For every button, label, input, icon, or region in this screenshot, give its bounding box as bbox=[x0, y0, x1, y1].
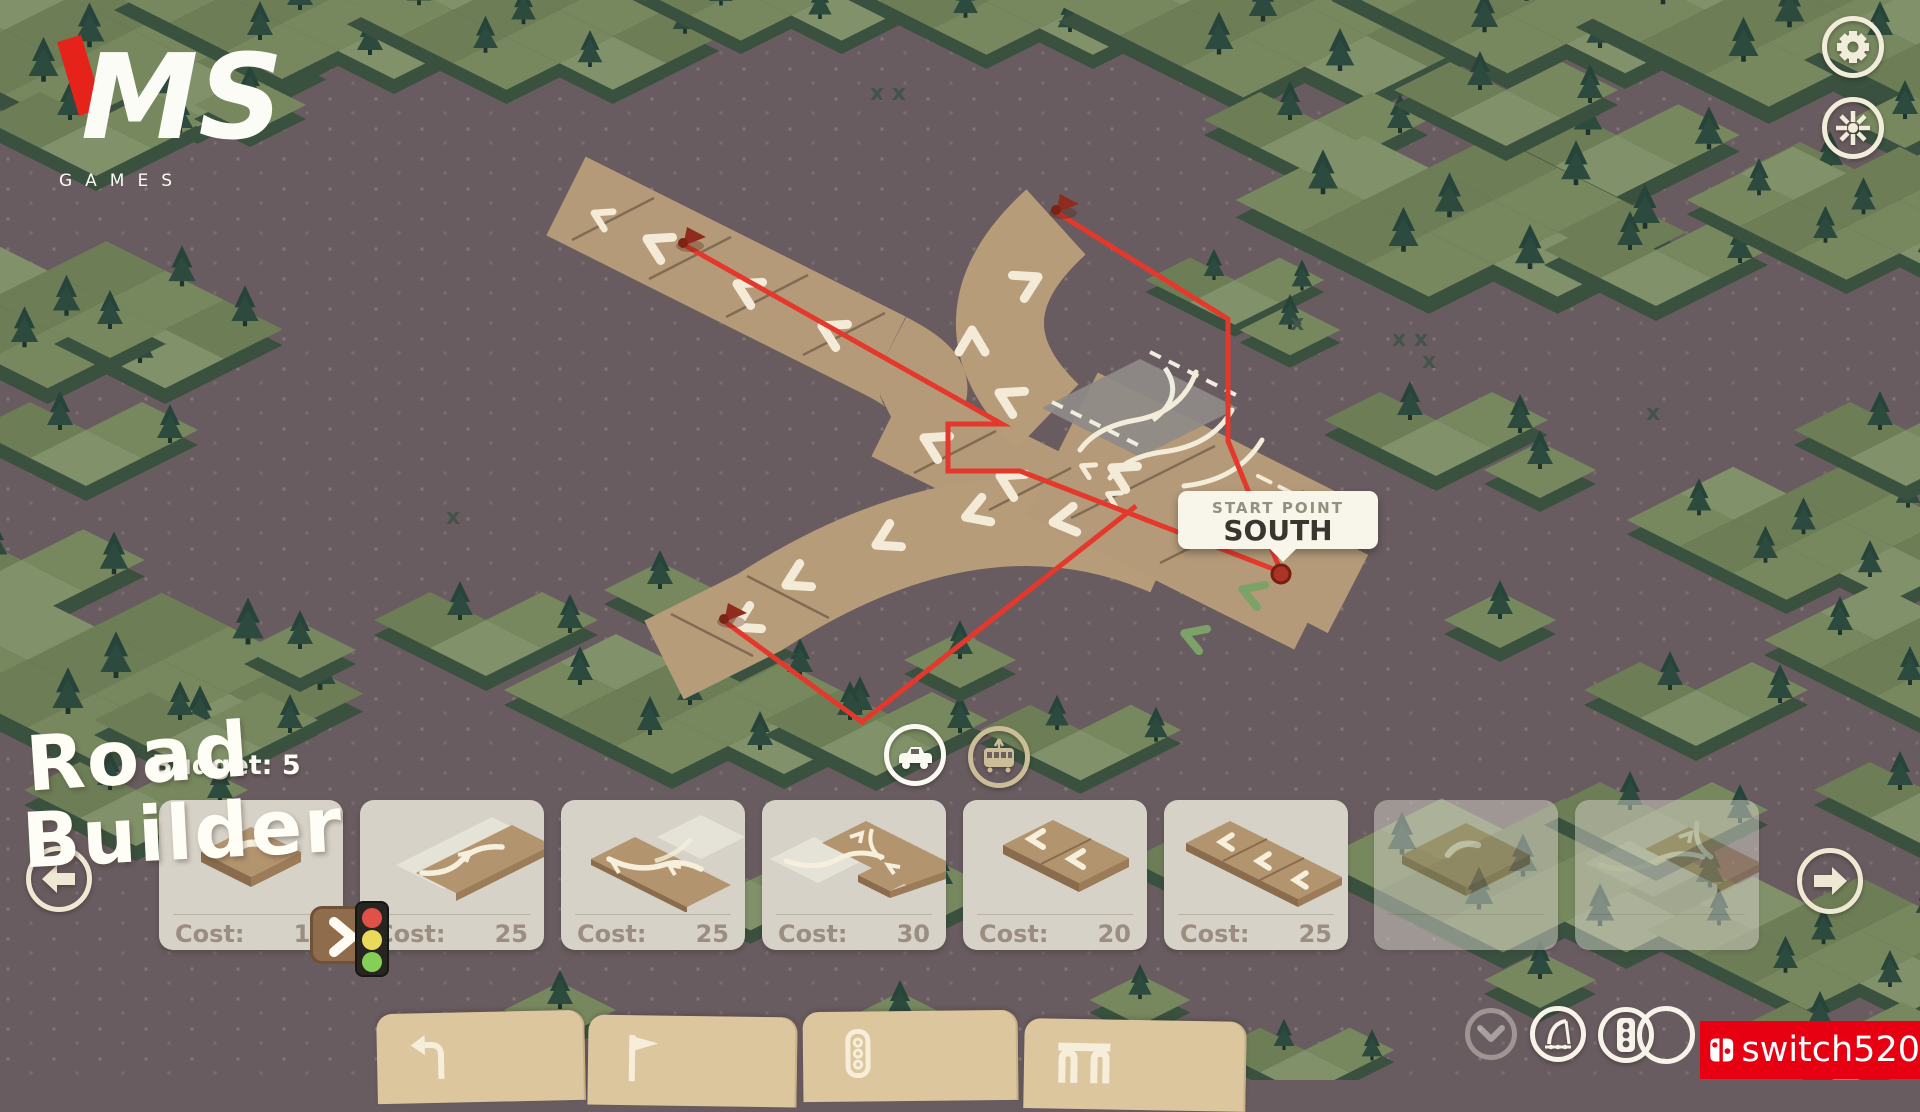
cost-label: Cost: bbox=[175, 920, 244, 948]
road-card-exit-ramp[interactable]: Cost:25 bbox=[561, 800, 745, 950]
collapse-toolbar-button[interactable] bbox=[1465, 1008, 1517, 1060]
logo-subtitle-glyph: GAMES bbox=[59, 171, 185, 191]
sun-icon bbox=[1833, 108, 1873, 148]
cost-label: Cost: bbox=[979, 920, 1048, 948]
tram-icon bbox=[978, 736, 1020, 778]
tile-wide-turn-icon bbox=[1374, 802, 1558, 912]
cost-label: Cost: bbox=[1180, 920, 1249, 948]
arrow-right-icon bbox=[1812, 866, 1848, 896]
svg-text:x x: x x bbox=[870, 81, 906, 106]
cost-value: 25 bbox=[495, 920, 528, 948]
start-point-tooltip: START POINT SOUTH bbox=[1178, 491, 1378, 549]
svg-text:x: x bbox=[1422, 349, 1436, 374]
flag-icon bbox=[618, 1031, 669, 1084]
drawbridge-button[interactable] bbox=[1530, 1006, 1586, 1062]
tile-straight-2-icon bbox=[963, 802, 1147, 912]
traffic-light-tab-icon bbox=[833, 1027, 884, 1082]
turn-left-arrow-icon bbox=[406, 1029, 457, 1082]
cost-value: 30 bbox=[897, 920, 930, 948]
road-card-junction[interactable]: Cost:30 bbox=[762, 800, 946, 950]
cost-label: Cost: bbox=[778, 920, 847, 948]
tile-exit-ramp-icon bbox=[561, 802, 745, 912]
cost-label: Cost: bbox=[577, 920, 646, 948]
road-card-junction-curve-disabled[interactable] bbox=[1575, 800, 1759, 950]
restart-button[interactable] bbox=[1822, 97, 1884, 159]
settings-button[interactable] bbox=[1822, 16, 1884, 78]
toolbar-next-button[interactable] bbox=[1797, 848, 1863, 914]
hidden-button[interactable] bbox=[1637, 1006, 1695, 1064]
tab-flag-tools[interactable] bbox=[587, 1015, 797, 1108]
road-card-straight-3[interactable]: Cost:25 bbox=[1164, 800, 1348, 950]
svg-text:x: x bbox=[1646, 401, 1660, 426]
tile-straight-3-icon bbox=[1164, 802, 1348, 912]
ms-games-logo: MS GAMES bbox=[35, 10, 295, 225]
drawbridge-icon bbox=[1540, 1016, 1576, 1052]
tooltip-value: SOUTH bbox=[1178, 517, 1378, 545]
switch520-watermark: switch520 bbox=[1700, 1021, 1920, 1079]
cost-value: 25 bbox=[1299, 920, 1332, 948]
tab-turn-tools[interactable] bbox=[376, 1010, 586, 1104]
svg-text:x: x bbox=[1290, 311, 1304, 336]
bridge-icon bbox=[1054, 1035, 1115, 1086]
nintendo-switch-icon bbox=[1708, 1027, 1735, 1073]
cost-value: 25 bbox=[696, 920, 729, 948]
traffic-light-icon bbox=[350, 898, 394, 982]
traffic-light-cursor bbox=[310, 898, 420, 982]
logo-title-glyph: MS bbox=[81, 28, 283, 166]
brand-name: switch520 bbox=[1741, 1030, 1920, 1070]
traffic-light-small-icon bbox=[1613, 1016, 1639, 1054]
watermark-title-line2: Builder bbox=[20, 780, 346, 886]
road-card-straight-2[interactable]: Cost:20 bbox=[963, 800, 1147, 950]
cost-value: 20 bbox=[1098, 920, 1131, 948]
tile-lane-change-icon bbox=[360, 802, 544, 912]
car-icon bbox=[894, 734, 936, 776]
road-card-wide-turn-disabled[interactable] bbox=[1374, 800, 1558, 950]
tab-bridge-tools[interactable] bbox=[1023, 1018, 1247, 1112]
svg-text:x: x bbox=[446, 505, 460, 530]
tile-junction-icon bbox=[762, 802, 946, 912]
chevron-down-icon bbox=[1476, 1024, 1506, 1044]
tab-traffic-light-tools[interactable] bbox=[803, 1010, 1019, 1102]
vehicle-toggle-car[interactable] bbox=[884, 724, 946, 786]
road-builder-game-screen: { "colors": { "accent_red": "#e8372e", "… bbox=[0, 0, 1920, 1080]
vehicle-toggle-tram[interactable] bbox=[968, 726, 1030, 788]
tile-junction-curve-icon bbox=[1575, 802, 1759, 912]
gear-icon bbox=[1833, 27, 1873, 67]
